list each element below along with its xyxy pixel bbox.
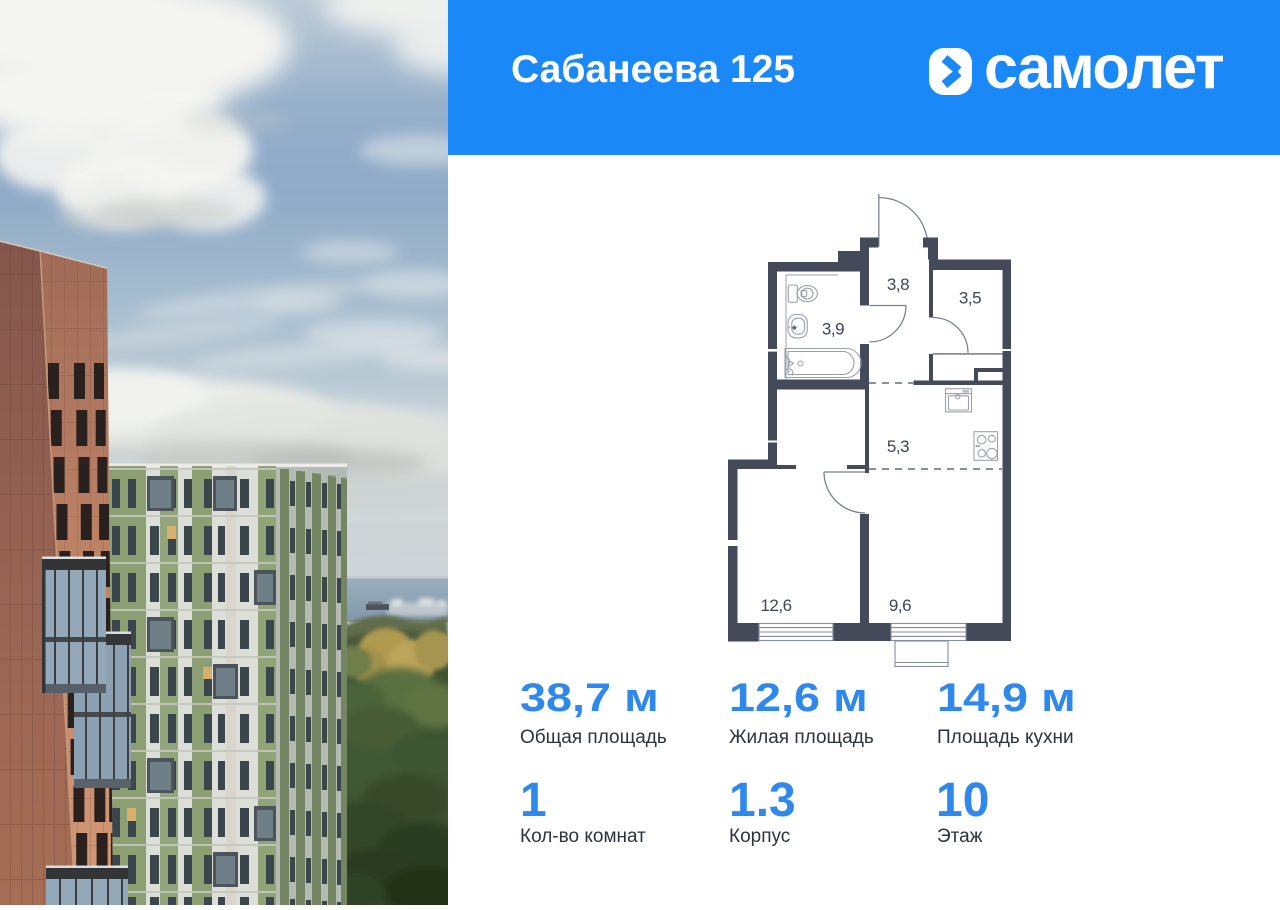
svg-text:9,6: 9,6 <box>889 596 911 615</box>
svg-text:12,6: 12,6 <box>760 596 791 615</box>
svg-text:3,5: 3,5 <box>959 289 981 308</box>
svg-text:3,9: 3,9 <box>822 320 844 339</box>
svg-text:5,3: 5,3 <box>887 437 909 456</box>
svg-text:3,8: 3,8 <box>887 275 909 294</box>
